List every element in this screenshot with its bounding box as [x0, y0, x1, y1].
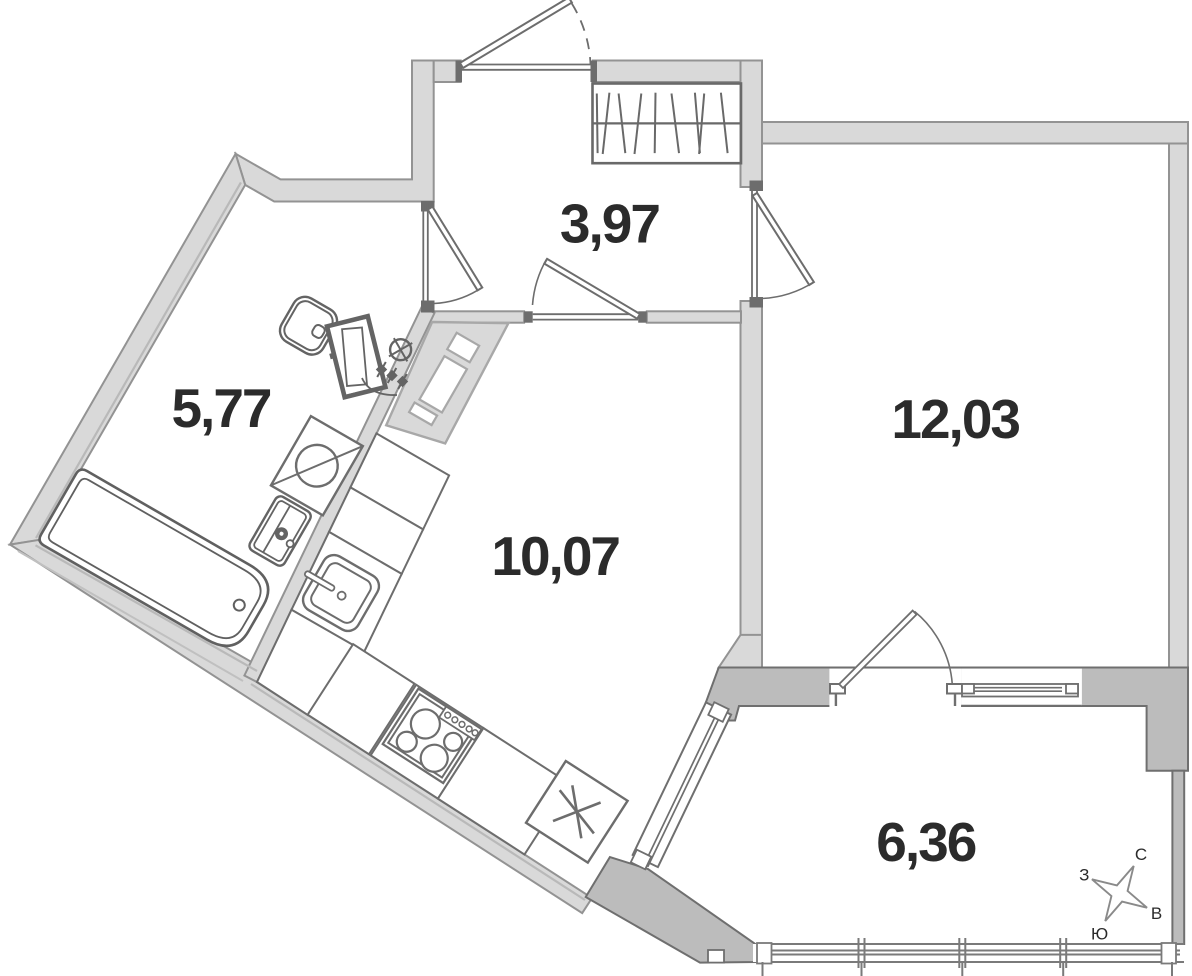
svg-text:С: С: [1135, 845, 1147, 864]
svg-text:З: З: [1079, 866, 1089, 885]
svg-text:12,03: 12,03: [891, 388, 1019, 450]
svg-text:10,07: 10,07: [491, 525, 619, 587]
svg-text:В: В: [1151, 904, 1162, 923]
svg-text:6,36: 6,36: [876, 811, 975, 873]
svg-text:Ю: Ю: [1091, 925, 1108, 944]
svg-text:5,77: 5,77: [171, 377, 270, 439]
svg-text:3,97: 3,97: [560, 192, 659, 254]
